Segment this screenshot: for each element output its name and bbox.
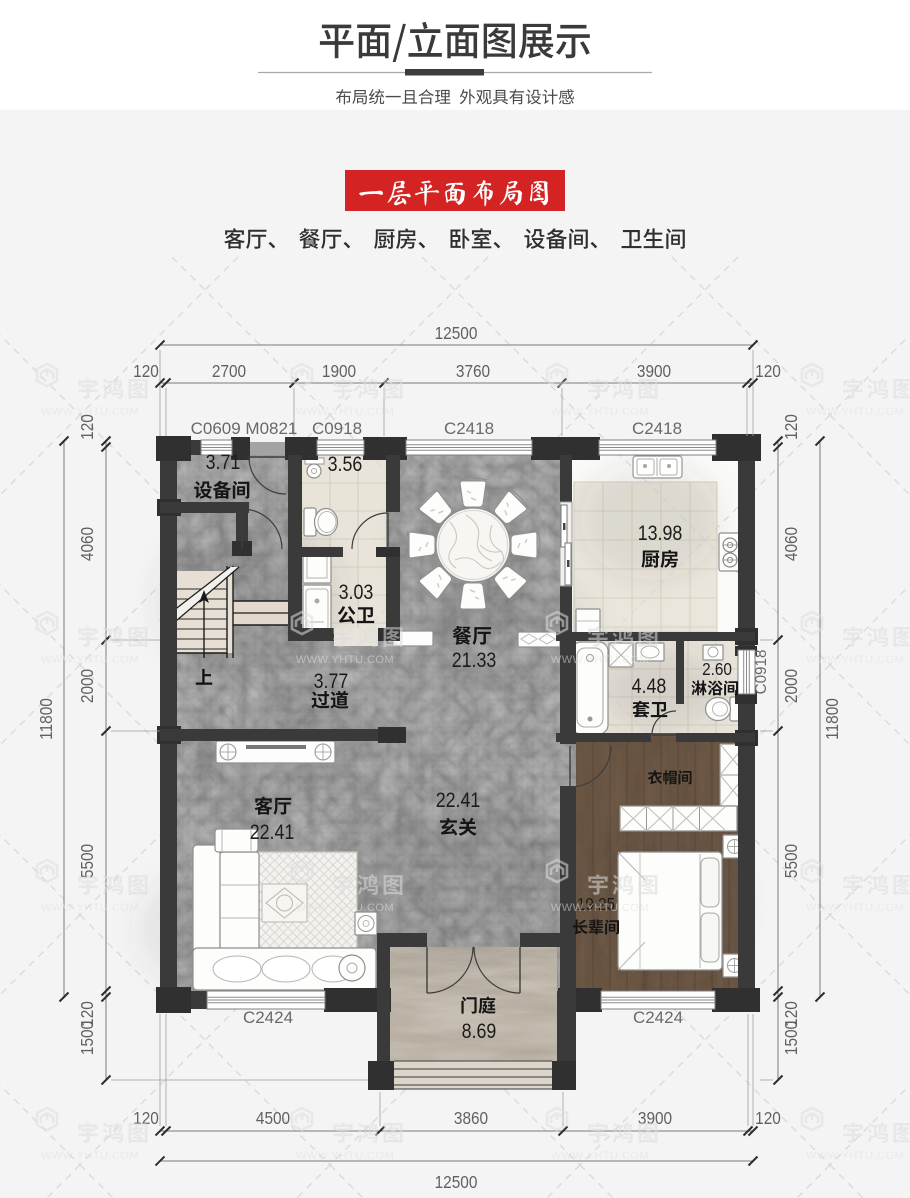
svg-text:1900: 1900	[322, 362, 356, 381]
svg-text:1500: 1500	[78, 1021, 97, 1055]
svg-text:120: 120	[755, 1109, 781, 1128]
svg-text:4060: 4060	[78, 527, 97, 561]
svg-text:3.71: 3.71	[206, 451, 241, 475]
svg-text:2000: 2000	[78, 669, 97, 703]
svg-text:C0918: C0918	[312, 419, 362, 438]
svg-text:C2424: C2424	[633, 1008, 683, 1027]
svg-text:11800: 11800	[823, 698, 842, 740]
svg-text:8.69: 8.69	[462, 1020, 497, 1044]
svg-text:C0918: C0918	[753, 650, 770, 695]
svg-text:5500: 5500	[78, 844, 97, 878]
svg-text:5500: 5500	[782, 844, 801, 878]
svg-text:4.48: 4.48	[632, 675, 667, 699]
svg-text:1500: 1500	[782, 1021, 801, 1055]
svg-text:21.33: 21.33	[452, 649, 497, 673]
svg-text:13.98: 13.98	[638, 522, 683, 546]
svg-text:3.03: 3.03	[339, 581, 374, 605]
svg-text:4060: 4060	[782, 527, 801, 561]
svg-text:3760: 3760	[456, 362, 490, 381]
svg-text:12500: 12500	[435, 1173, 478, 1192]
svg-text:3.56: 3.56	[328, 453, 363, 477]
svg-text:4500: 4500	[256, 1109, 290, 1128]
svg-text:2700: 2700	[212, 362, 246, 381]
svg-text:11800: 11800	[37, 698, 56, 740]
svg-text:120: 120	[78, 414, 97, 440]
svg-text:120: 120	[755, 362, 781, 381]
svg-text:22.41: 22.41	[436, 789, 481, 813]
svg-text:22.41: 22.41	[250, 821, 295, 845]
svg-text:C2418: C2418	[444, 419, 494, 438]
svg-text:C2418: C2418	[632, 419, 682, 438]
svg-text:120: 120	[782, 414, 801, 440]
svg-text:12500: 12500	[435, 324, 478, 343]
svg-text:2000: 2000	[782, 669, 801, 703]
svg-text:C2424: C2424	[243, 1008, 293, 1027]
svg-text:3900: 3900	[637, 362, 671, 381]
svg-text:C0609 M0821: C0609 M0821	[191, 419, 298, 438]
svg-text:3.77: 3.77	[314, 670, 349, 694]
svg-text:2.60: 2.60	[702, 659, 732, 679]
svg-text:120: 120	[133, 362, 159, 381]
svg-text:3860: 3860	[454, 1109, 488, 1128]
